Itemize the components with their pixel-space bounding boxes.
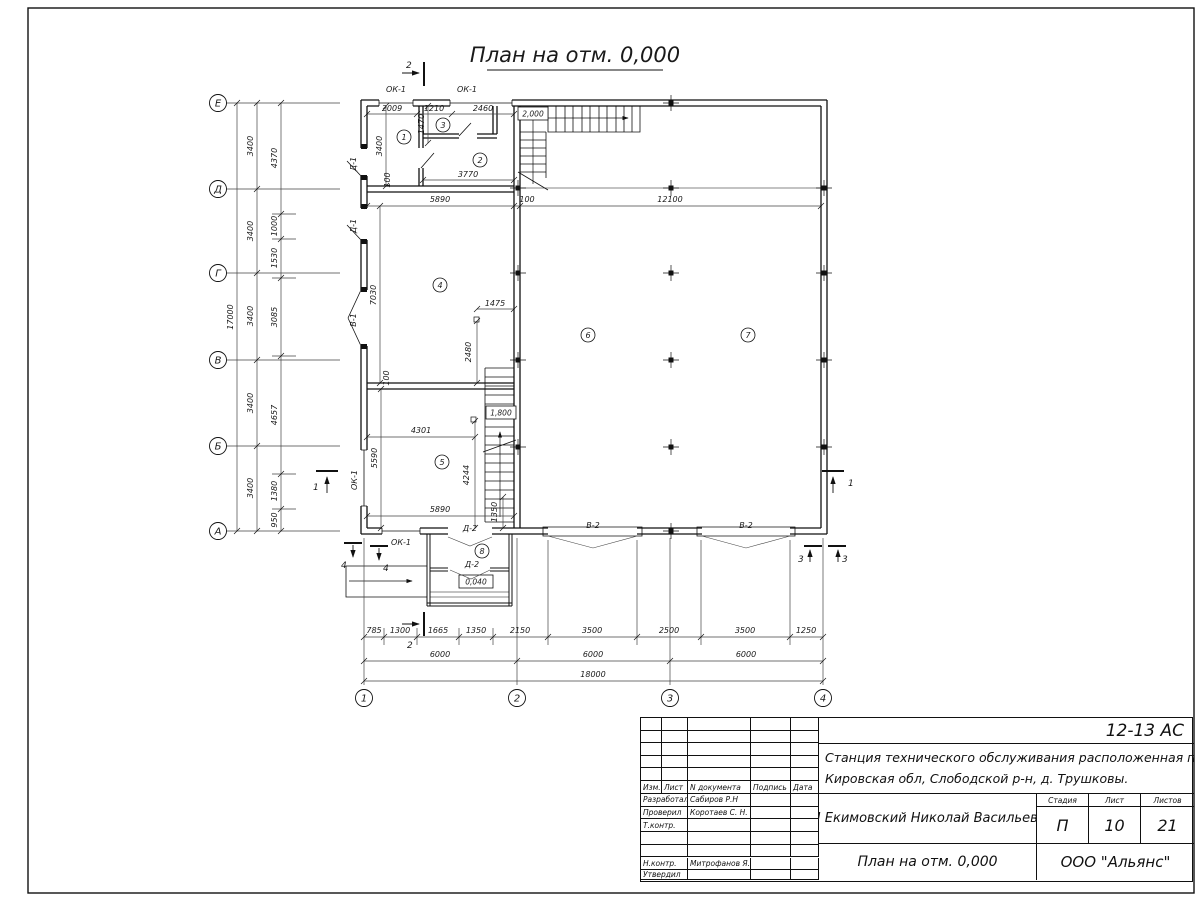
gate-label: В-2	[739, 521, 752, 530]
dim-label: 3400	[246, 478, 255, 498]
walls-layer	[347, 100, 827, 534]
window-label: ОК-1	[386, 85, 406, 94]
axis-label: В	[215, 356, 222, 367]
dim-label: 100	[519, 195, 534, 204]
page-title: План на отм. 0,000	[470, 43, 680, 67]
windows-layer	[361, 100, 795, 536]
dim-label: 3500	[735, 626, 755, 635]
vestibule	[427, 534, 512, 606]
room-numbers: 1 2 3 4 5 6 7 8	[397, 118, 755, 558]
dim-label: 100	[382, 370, 391, 385]
section-mark-label: 3	[842, 555, 848, 565]
dim-label: 1000	[270, 216, 279, 236]
drawing-title: План на отм. 0,000	[470, 43, 680, 70]
dims-left-labels: 4370 1000 1530 3085 4657 1380 950 3400 3…	[226, 136, 279, 528]
axis-label: 2	[514, 694, 520, 705]
elevation-value: 0,040	[465, 578, 487, 587]
dim-label: 5890	[430, 505, 450, 514]
axis-label: 1	[361, 694, 367, 705]
dim-label: 1350	[490, 502, 499, 522]
role-label: Разработал	[641, 794, 688, 807]
dim-label: 4657	[270, 404, 279, 425]
axis-label: Е	[215, 99, 222, 110]
sheet-header: Лист	[1089, 794, 1141, 807]
col-header-izm: Изм.	[641, 781, 662, 794]
section-mark-label: 3	[798, 555, 804, 565]
dim-label: 1665	[428, 626, 448, 635]
role-name	[688, 819, 751, 832]
drawing-name: План на отм. 0,000	[819, 844, 1037, 880]
sheets-header: Листов	[1141, 794, 1194, 807]
section-mark-label: 2	[407, 641, 413, 651]
axis-label: 3	[667, 694, 673, 705]
axis-label: Д	[213, 185, 222, 196]
section-mark-label: 4	[341, 561, 347, 571]
room-number: 3	[440, 121, 445, 130]
role-label	[641, 832, 688, 845]
sheet-number: 10	[1089, 807, 1141, 844]
window-label: ОК-1	[391, 538, 411, 547]
dim-label: 4301	[411, 426, 431, 435]
sheets-total: 21	[1141, 807, 1194, 844]
dims-inner-labels: 2009 1210 2460 5890 100 12100 1470 3400 …	[369, 104, 683, 522]
role-label: Утвердил	[641, 870, 688, 880]
dim-label: 1350	[466, 626, 486, 635]
dims-inner	[364, 103, 824, 531]
dim-label: 950	[270, 512, 279, 527]
dim-label: 1470	[417, 114, 426, 134]
dim-label: 1250	[796, 626, 816, 635]
drawing-sheet: План на отм. 0,000	[0, 0, 1200, 900]
role-name	[688, 845, 751, 858]
title-block: Изм. Лист N документа Подпись Дата Разра…	[640, 717, 1193, 882]
role-name	[688, 832, 751, 845]
door-label: Д-1	[349, 219, 358, 234]
dim-label: 1210	[424, 104, 444, 113]
organization-name: ООО "Альянс"	[1037, 844, 1194, 880]
dim-label: 6000	[430, 650, 450, 659]
room-number: 5	[439, 458, 444, 467]
dim-label: 12100	[657, 195, 682, 204]
dim-label: 1300	[390, 626, 410, 635]
dims-bottom	[361, 538, 826, 685]
role-label: Н.контр.	[641, 858, 688, 871]
document-code: 12-13 АС	[819, 718, 1194, 744]
dim-label: 5590	[370, 448, 379, 468]
dim-label: 3400	[246, 136, 255, 156]
section-mark-label: 1	[313, 483, 319, 493]
dim-label: 100	[383, 172, 392, 187]
dim-label: 3085	[270, 307, 279, 327]
room-number: 4	[437, 281, 442, 290]
dims-left	[226, 100, 340, 534]
door-label: Д-1	[349, 157, 358, 172]
gate-label: В-1	[349, 313, 358, 326]
section-mark-label: 1	[848, 479, 854, 489]
dim-label: 3500	[582, 626, 602, 635]
role-name: Коротаев С. Н.	[688, 807, 751, 820]
dim-label: 1475	[485, 299, 505, 308]
axis-label: 4	[820, 694, 826, 705]
col-header-sign: Подпись	[751, 781, 791, 794]
dims-bottom-labels: 785 1300 1665 1350 2150 3500 2500 3500 1…	[366, 626, 816, 679]
dim-label: 6000	[736, 650, 756, 659]
gate-label: В-2	[586, 521, 599, 530]
room-number: 2	[477, 156, 482, 165]
room-number: 8	[479, 547, 484, 556]
opening-labels: ОК-1 ОК-1 ОК-1 ОК-1 Д-1 Д-1 В-1 Д-2 Д-2 …	[349, 85, 790, 579]
dim-label: 2150	[510, 626, 530, 635]
dim-label: 4244	[462, 465, 471, 485]
client-name: ИП Екимовский Николай Васильевич	[819, 794, 1037, 844]
dim-label: 1530	[270, 248, 279, 268]
dim-label: 4370	[270, 148, 279, 168]
dim-label: 17000	[226, 304, 235, 329]
dim-label: 3400	[246, 393, 255, 413]
dim-label: 2480	[464, 342, 473, 362]
section-marks: 2 2 1 1 3 3 4 4	[313, 61, 854, 651]
dim-label: 1380	[270, 481, 279, 501]
dim-label: 6000	[583, 650, 603, 659]
dim-label: 7030	[369, 285, 378, 305]
section-mark-label: 2	[406, 61, 412, 71]
door-label: Д-2	[464, 560, 479, 569]
stage-header: Стадия	[1037, 794, 1089, 807]
axis-label: Г	[215, 269, 222, 280]
role-label: Проверил	[641, 807, 688, 820]
wall-piers	[361, 144, 367, 349]
dim-label: 3400	[375, 136, 384, 156]
object-name-line1: Станция технического обслуживания распол…	[825, 747, 1194, 768]
window-label: ОК-1	[350, 470, 359, 490]
room-number: 1	[401, 133, 406, 142]
role-label: Т.контр.	[641, 819, 688, 832]
door-label: Д-2	[462, 524, 477, 533]
dim-label: 3770	[458, 170, 478, 179]
role-label	[641, 845, 688, 858]
stairs-mid	[483, 368, 516, 522]
dim-label: 785	[366, 626, 381, 635]
role-name: Митрофанов Я. А.	[688, 858, 751, 871]
dim-label: 3400	[246, 221, 255, 241]
room-number: 6	[585, 331, 590, 340]
dim-label: 2009	[382, 104, 402, 113]
room-number: 7	[745, 331, 751, 340]
section-mark-label: 4	[383, 564, 389, 574]
axis-label: Б	[215, 442, 222, 453]
dim-label: 2460	[473, 104, 493, 113]
dim-label: 2500	[659, 626, 679, 635]
elevation-value: 2,000	[522, 110, 544, 119]
stage-value: П	[1037, 807, 1089, 844]
role-name	[688, 870, 751, 880]
dim-label: 3400	[246, 306, 255, 326]
dim-label: 18000	[580, 670, 605, 679]
col-header-ndoc: N документа	[688, 781, 751, 794]
window-label: ОК-1	[457, 85, 477, 94]
col-header-list: Лист	[662, 781, 688, 794]
dim-label: 5890	[430, 195, 450, 204]
role-name: Сабиров Р.Н	[688, 794, 751, 807]
columns-layer	[510, 95, 832, 539]
axis-label: А	[214, 527, 222, 538]
col-header-date: Дата	[791, 781, 819, 794]
elevation-value: 1,800	[490, 409, 512, 418]
object-name-line2: Кировская обл, Слободской р-н, д. Трушко…	[825, 768, 1194, 789]
